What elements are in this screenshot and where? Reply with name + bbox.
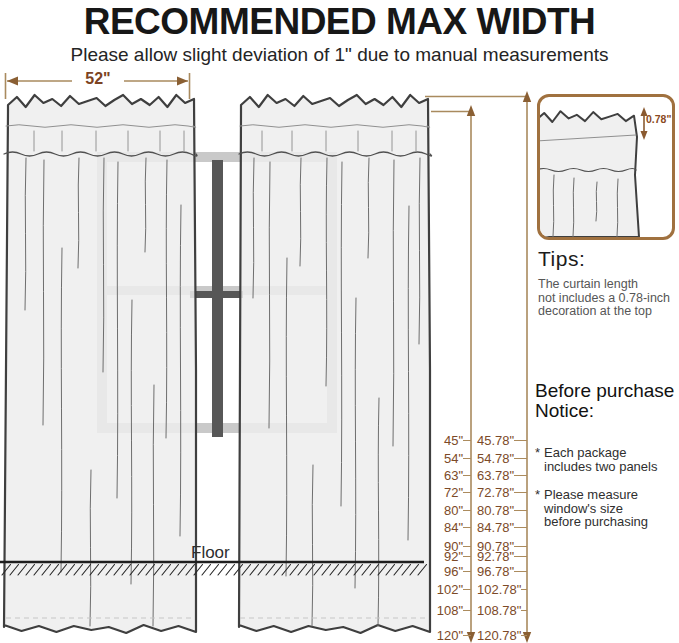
inset-dimension-label: 0.78" (646, 113, 671, 125)
tick-dash (514, 458, 527, 459)
bullet-text-line: includes two panels (544, 460, 657, 474)
total-length-label: 72.78" (477, 485, 514, 500)
tick-dash (463, 527, 471, 528)
curtain-length-label: 72" (408, 485, 463, 500)
tick-dash (514, 556, 527, 557)
measurement-row: 96" 96.78" (408, 563, 527, 579)
curtain-length-label: 102" (408, 582, 463, 597)
inset-detail-box: 0.78" (537, 94, 675, 240)
tick-dash (463, 589, 471, 590)
measurement-row: 102" 102.78" (408, 581, 527, 597)
notice-bullet: * Each package includes two panels (535, 446, 679, 473)
tick-dash (521, 635, 527, 636)
measurement-row: 45" 45.78" (408, 432, 527, 448)
bullet-marker: * (535, 446, 544, 473)
total-length-label: 102.78" (477, 582, 521, 597)
window-mullion (212, 160, 223, 437)
tips-section: Tips: The curtain length not includes a … (538, 247, 676, 319)
tick-dash (514, 492, 527, 493)
bullet-text-line: window's size (544, 502, 648, 516)
curtain-size-diagram: RECOMMENDED MAX WIDTH Please allow sligh… (0, 0, 679, 643)
total-length-label: 54.78" (477, 451, 514, 466)
tick-dash (514, 527, 527, 528)
measurement-row: 120" 120.78" (408, 627, 527, 643)
bullet-marker: * (535, 488, 544, 529)
notice-heading-line: Before purchase (535, 381, 679, 401)
floor-label: Floor (191, 543, 230, 563)
total-length-label: 63.78" (477, 468, 514, 483)
curtain-length-label: 96" (408, 564, 463, 579)
tick-dash (521, 589, 527, 590)
notice-section: Before purchase Notice: * Each package i… (535, 381, 679, 544)
tips-text-line: not includes a 0.78-inch (538, 292, 676, 306)
curtain-length-label: 45" (408, 433, 463, 448)
measurement-row: 108" 108.78" (408, 602, 527, 618)
tick-dash (514, 475, 527, 476)
measurement-scale: 45" 45.78" 54" 54.78" 63" 63.78" 72" 72.… (408, 0, 527, 643)
curtain-length-label: 84" (408, 520, 463, 535)
curtain-panel-right (239, 95, 432, 633)
total-length-label: 96.78" (477, 564, 514, 579)
tips-text-line: decoration at the top (538, 305, 676, 319)
tick-dash (463, 510, 471, 511)
tick-dash (463, 556, 471, 557)
tick-dash (463, 635, 471, 636)
bullet-text-line: Please measure (544, 488, 648, 502)
total-length-label: 45.78" (477, 433, 514, 448)
width-dimension-label: 52" (72, 70, 124, 88)
curtain-length-label: 120" (408, 628, 463, 643)
tick-dash (514, 510, 527, 511)
tick-dash (514, 571, 527, 572)
curtain-length-label: 54" (408, 451, 463, 466)
tick-dash (463, 546, 471, 547)
total-length-label: 84.78" (477, 520, 514, 535)
tips-heading: Tips: (538, 247, 676, 271)
total-length-label: 80.78" (477, 503, 514, 518)
measurement-row: 54" 54.78" (408, 450, 527, 466)
curtain-length-label: 80" (408, 503, 463, 518)
tick-dash (514, 440, 527, 441)
bullet-text-line: Each package (544, 446, 657, 460)
window-crossbar (190, 291, 243, 298)
total-length-label: 108.78" (477, 603, 521, 618)
tick-dash (463, 475, 471, 476)
notice-heading-line: Notice: (535, 401, 679, 421)
tick-dash (463, 610, 471, 611)
total-length-label: 120.78" (477, 628, 521, 643)
measurement-row: 92" 92.78" (408, 548, 527, 564)
curtain-length-label: 92" (408, 549, 463, 564)
bullet-text-line: before purchasing (544, 515, 648, 529)
total-length-label: 92.78" (477, 549, 514, 564)
notice-bullet: * Please measure window's size before pu… (535, 488, 679, 529)
tick-dash (463, 571, 471, 572)
tick-dash (463, 492, 471, 493)
measurement-row: 84" 84.78" (408, 519, 527, 535)
measurement-row: 72" 72.78" (408, 484, 527, 500)
curtain-length-label: 63" (408, 468, 463, 483)
tick-dash (514, 546, 527, 547)
tick-dash (463, 458, 471, 459)
tick-dash (521, 610, 527, 611)
tick-dash (463, 440, 471, 441)
measurement-row: 63" 63.78" (408, 467, 527, 483)
curtain-length-label: 108" (408, 603, 463, 618)
measurement-row: 80" 80.78" (408, 502, 527, 518)
tips-text-line: The curtain length (538, 278, 676, 292)
curtain-panel-left (4, 95, 197, 633)
